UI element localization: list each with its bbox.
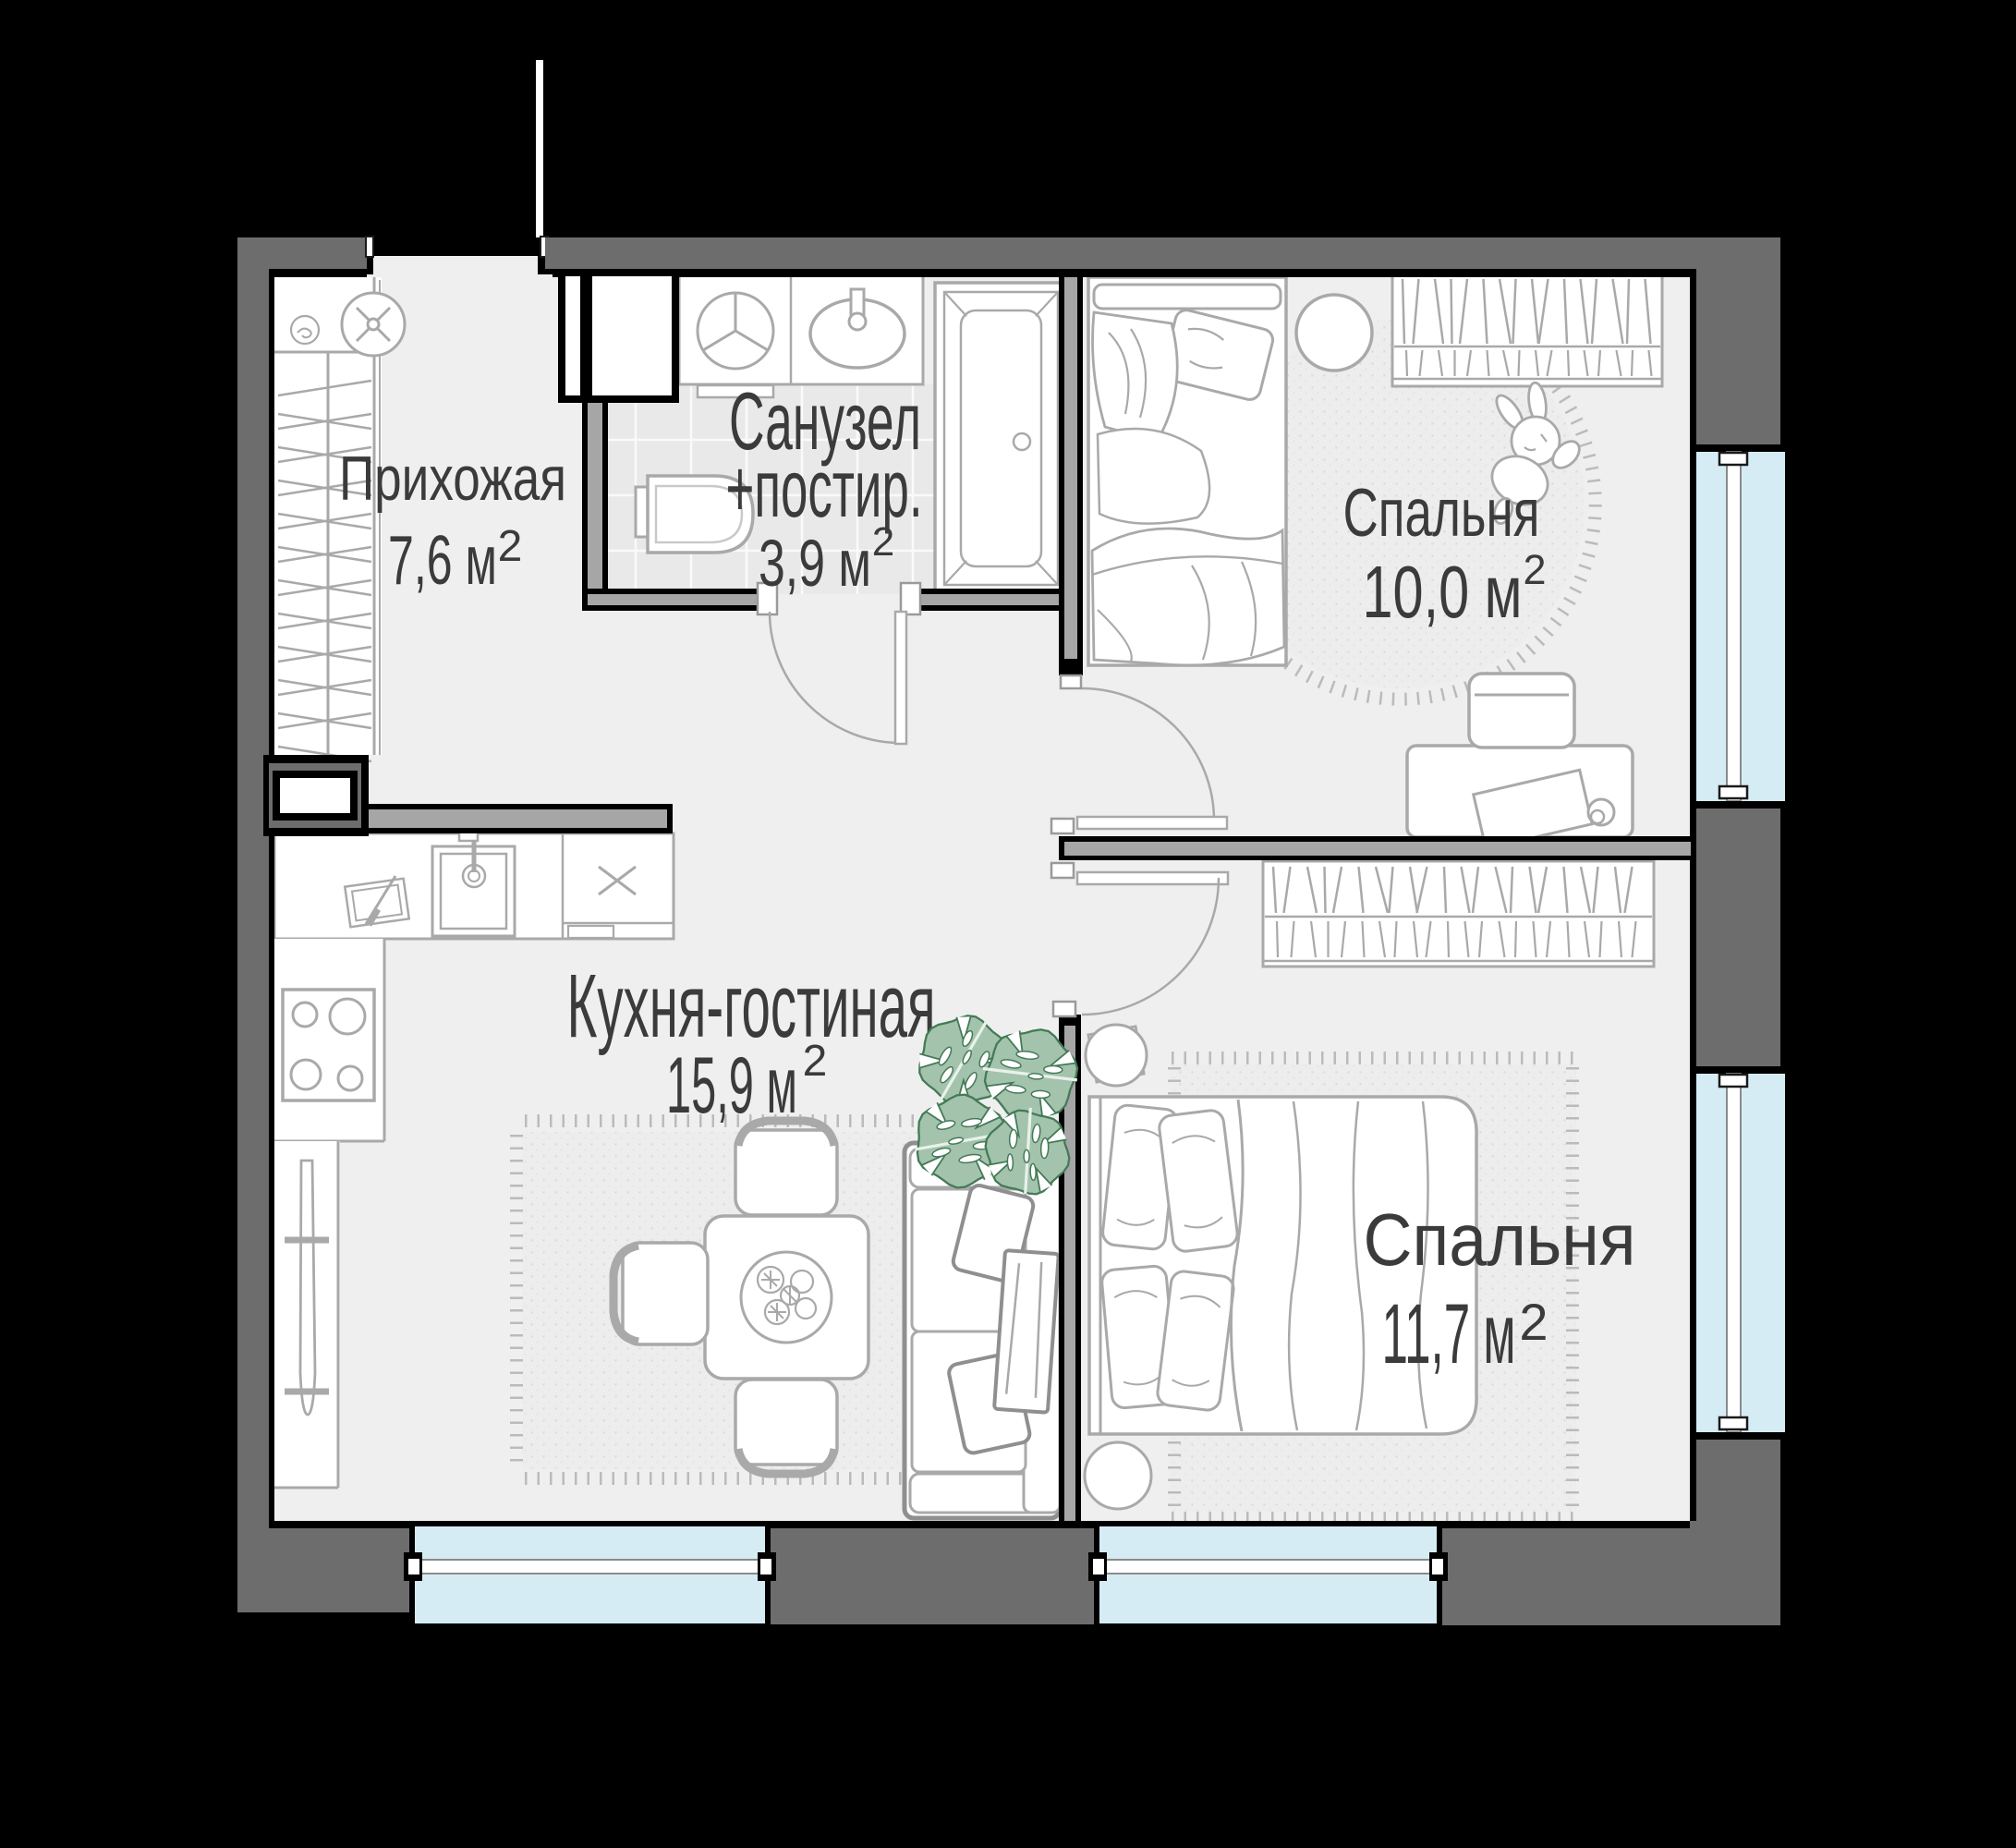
svg-text:15,9 м: 15,9 м bbox=[666, 1041, 797, 1130]
svg-text:3,9 м: 3,9 м bbox=[759, 528, 871, 601]
svg-text:2: 2 bbox=[872, 519, 894, 565]
svg-text:Спальня: Спальня bbox=[1343, 476, 1540, 551]
svg-text:10,0 м: 10,0 м bbox=[1363, 551, 1523, 633]
svg-text:7,6 м: 7,6 м bbox=[388, 521, 497, 599]
svg-text:11,7 м: 11,7 м bbox=[1382, 1287, 1516, 1381]
svg-text:2: 2 bbox=[1519, 1293, 1548, 1351]
svg-text:Прихожая: Прихожая bbox=[339, 444, 566, 514]
svg-text:Спальня: Спальня bbox=[1364, 1198, 1636, 1281]
svg-text:2: 2 bbox=[803, 1037, 828, 1086]
svg-text:2: 2 bbox=[1523, 546, 1546, 593]
svg-text:2: 2 bbox=[498, 522, 523, 571]
